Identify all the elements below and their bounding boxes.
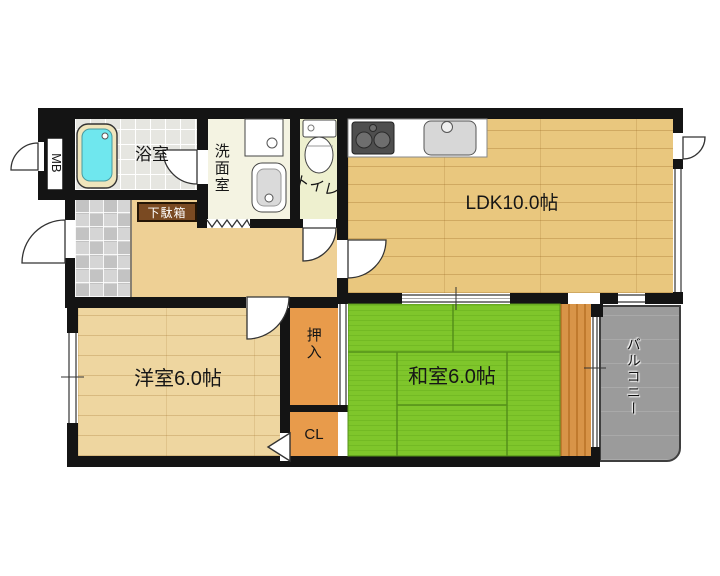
bath-label: 浴室 bbox=[112, 146, 192, 164]
door-swing-icon bbox=[303, 228, 336, 261]
japanese-room-label: 和室6.0帖 bbox=[352, 367, 552, 388]
kitchen bbox=[348, 119, 487, 157]
washing-machine-icon bbox=[245, 119, 283, 156]
floorplan: 下駄箱 bbox=[0, 0, 720, 576]
floorplan-overlay bbox=[0, 0, 720, 576]
fusuma-icon bbox=[338, 304, 348, 405]
western-room-label: 洋室6.0帖 bbox=[78, 369, 278, 390]
bathtub-icon bbox=[77, 124, 117, 188]
oshiire-label: 押入 bbox=[305, 327, 321, 379]
window-icon bbox=[584, 317, 606, 447]
door-swing-icon bbox=[22, 220, 65, 263]
accordion-door-icon bbox=[207, 219, 250, 228]
window-icon bbox=[673, 169, 683, 292]
door-swing-icon bbox=[348, 240, 386, 278]
ldk-label: LDK10.0帖 bbox=[430, 194, 594, 214]
gas-stove-icon bbox=[352, 122, 394, 154]
toilet-icon bbox=[303, 120, 336, 173]
door-swing-icon bbox=[683, 137, 705, 159]
vanity-sink-icon bbox=[252, 163, 286, 212]
balcony-label: バルコニー bbox=[626, 337, 641, 437]
kitchen-sink-icon bbox=[424, 121, 476, 155]
sliding-door-icon bbox=[402, 287, 510, 310]
meter-box-label: MB bbox=[49, 147, 63, 179]
window-icon bbox=[618, 293, 645, 304]
door-swing-icon bbox=[11, 143, 38, 170]
washroom-label: 洗面室 bbox=[213, 143, 229, 215]
cl-label: CL bbox=[290, 427, 338, 443]
